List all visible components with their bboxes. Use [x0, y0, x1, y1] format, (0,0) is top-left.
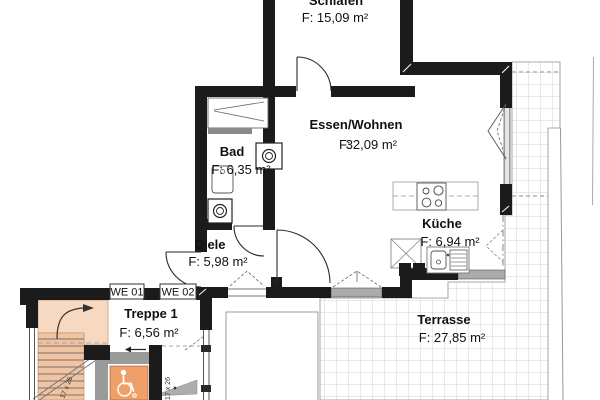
shower-curb	[208, 128, 252, 134]
floor-plan-drawing: Schlafen F: 15,09 m² Essen/Wohnen F: 32,…	[0, 0, 600, 400]
room-label-bad: Bad	[220, 144, 245, 159]
stair-lower-flight	[38, 333, 84, 400]
room-area-kueche: F: 6,94 m²	[420, 234, 480, 249]
room-label-schlafen: Schlafen	[309, 0, 363, 8]
door-swing-wohnen	[277, 230, 330, 283]
door-swing-schlafen	[297, 57, 331, 91]
site-boundary-line	[593, 57, 594, 205]
room-label-essen-wohnen: Essen/Wohnen	[310, 117, 403, 132]
terrace-door-opening-symbol	[486, 230, 503, 262]
lobby-partition	[95, 358, 108, 400]
unit-label-we02: WE 02	[161, 287, 194, 299]
ramp-marker-dot	[174, 387, 177, 390]
room-area-treppe: F: 6,56 m²	[119, 325, 179, 340]
sink-icon	[427, 247, 469, 273]
room-label-kueche: Küche	[422, 216, 462, 231]
lower-room-outline	[226, 312, 318, 400]
counter-block	[413, 263, 425, 276]
opening-dashed-line	[185, 337, 203, 350]
stove-icon	[417, 183, 446, 210]
terrace-tiles	[320, 62, 560, 400]
room-area-schlafen: F: 15,09 m²	[302, 10, 369, 25]
room-label-diele: Diele	[194, 237, 225, 252]
window-sill-living-south	[331, 288, 382, 297]
unit-label-we01: WE 01	[110, 287, 143, 299]
room-area-bad: F: 6,35 m²	[211, 162, 271, 177]
room-area-terrasse: F: 27,85 m²	[419, 330, 486, 345]
counter-block	[399, 263, 411, 276]
terrace-edge-line	[561, 128, 564, 400]
room-area-diele: F: 5,98 m²	[188, 254, 248, 269]
door-swing-bad	[234, 226, 264, 256]
lobby-partition	[108, 352, 150, 364]
room-label-treppe: Treppe 1	[124, 306, 177, 321]
exit-arrow-head-icon	[125, 347, 131, 353]
room-area-value-essen: 32,09 m²	[346, 137, 398, 152]
room-label-terrasse: Terrasse	[417, 312, 470, 327]
washer-icon	[208, 199, 232, 223]
stair-dimension-entry: 17 x 26	[165, 377, 172, 400]
floor-plan: Schlafen F: 15,09 m² Essen/Wohnen F: 32,…	[0, 0, 600, 400]
